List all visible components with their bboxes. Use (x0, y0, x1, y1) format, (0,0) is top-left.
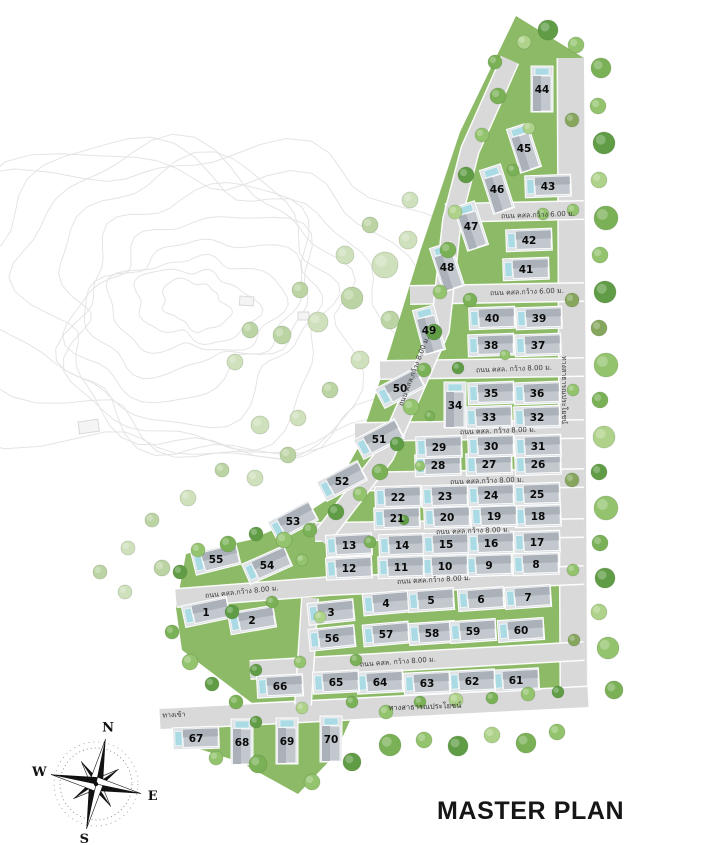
lot-number: 54 (260, 560, 275, 572)
pool (280, 720, 294, 727)
tree-highlight (193, 545, 199, 551)
lot-number: 42 (522, 235, 537, 247)
tree-highlight (597, 499, 608, 510)
lot-number: 16 (484, 538, 499, 550)
tree-highlight (477, 130, 483, 136)
lot-number: 47 (464, 221, 479, 233)
pool (517, 439, 524, 453)
pool (470, 536, 477, 550)
contour-line (106, 254, 288, 353)
lot-number: 39 (532, 313, 547, 325)
lot-number: 37 (531, 340, 546, 352)
pool (516, 386, 523, 400)
lot-number: 26 (531, 459, 546, 471)
tree-highlight (454, 364, 459, 369)
pool (505, 262, 512, 276)
lot-number: 20 (440, 512, 455, 524)
compass-letter: S (80, 832, 89, 845)
lot-number: 56 (325, 633, 340, 645)
pool (495, 674, 503, 688)
plan-title: MASTER PLAN (437, 797, 624, 826)
lot-number: 65 (329, 677, 344, 689)
lot-number: 22 (391, 492, 406, 504)
lot-number: 61 (509, 675, 524, 687)
tree-highlight (596, 135, 606, 145)
pool (468, 410, 475, 424)
tree-highlight (231, 697, 237, 703)
pool (507, 591, 515, 605)
pool (473, 509, 480, 523)
tree-highlight (381, 707, 387, 713)
pool (517, 509, 524, 523)
lot-number: 18 (531, 511, 546, 523)
lot-number: 19 (487, 511, 502, 523)
lot-number: 68 (235, 737, 250, 749)
pool (468, 457, 475, 471)
tree-highlight (249, 472, 256, 479)
tree-highlight (541, 23, 550, 32)
tree-highlight (597, 284, 607, 294)
pool (470, 439, 477, 453)
pool (470, 338, 477, 352)
pool (418, 440, 425, 454)
tree-highlight (374, 466, 381, 473)
lot-number: 70 (324, 734, 339, 746)
tree-highlight (282, 449, 289, 456)
tree-highlight (567, 475, 573, 481)
tree-highlight (156, 562, 163, 569)
pool (310, 633, 318, 648)
lot-number: 43 (541, 181, 556, 193)
existing-building (298, 312, 309, 320)
tree-highlight (392, 439, 398, 445)
lot-number: 30 (484, 441, 499, 453)
tree-highlight (364, 219, 371, 226)
lot-number: 5 (427, 595, 434, 607)
tree-highlight (182, 492, 189, 499)
tree-highlight (344, 290, 354, 300)
tree-highlight (207, 679, 213, 685)
pool (380, 560, 387, 574)
tree-highlight (251, 757, 259, 765)
lot-number: 13 (342, 540, 357, 552)
tree-highlight (311, 315, 320, 324)
compass-letter: N (102, 720, 114, 735)
lot-number: 17 (530, 537, 545, 549)
existing-building (78, 419, 99, 434)
tree-highlight (401, 233, 409, 241)
contour-line (162, 278, 232, 332)
tree-highlight (416, 462, 421, 467)
tree-highlight (353, 353, 361, 361)
pool (324, 718, 338, 725)
contour-line (9, 134, 364, 459)
lot-number: 62 (465, 676, 480, 688)
tree-highlight (501, 351, 506, 356)
lot-number: 52 (335, 476, 350, 488)
lot-number: 41 (519, 264, 534, 276)
pool (425, 537, 432, 551)
existing-building (239, 296, 254, 306)
tree-highlight (567, 115, 573, 121)
lot-number: 8 (532, 559, 539, 571)
pool (460, 593, 468, 607)
tree-highlight (594, 537, 601, 544)
tree-highlight (435, 287, 441, 293)
tree-highlight (330, 506, 337, 513)
lot-number: 21 (390, 513, 405, 525)
tree-highlight (570, 39, 577, 46)
tree-highlight (296, 658, 301, 663)
lot-number: 66 (273, 681, 288, 693)
entrance-label: ทางเข้า (162, 710, 186, 719)
pool (470, 488, 477, 502)
tree-highlight (338, 248, 346, 256)
tree-highlight (519, 736, 528, 745)
tree-highlight (426, 412, 431, 417)
pool (471, 311, 478, 325)
lot-number: 29 (432, 442, 447, 454)
lot-number: 1 (202, 607, 209, 619)
tree-highlight (306, 776, 313, 783)
lot-number: 32 (530, 412, 545, 424)
tree-highlight (600, 640, 610, 650)
tree-highlight (275, 328, 283, 336)
tree-highlight (450, 207, 456, 213)
tree-highlight (244, 324, 251, 331)
pool (259, 680, 267, 694)
tree-highlight (383, 313, 391, 321)
lot-number: 67 (189, 733, 204, 745)
tree-highlight (486, 729, 493, 736)
pool (381, 538, 388, 552)
site-plan-svg: 1234567891011121314151617181920212223242… (0, 0, 725, 845)
lot-number: 53 (286, 516, 301, 528)
tree-highlight (316, 613, 321, 618)
tree-highlight (607, 683, 615, 691)
tree-highlight (184, 656, 191, 663)
lot-number: 49 (422, 325, 437, 337)
house-roof-ridge (523, 554, 558, 563)
tree-highlight (597, 209, 608, 220)
tree-highlight (404, 194, 411, 201)
pool (516, 410, 523, 424)
tree-highlight (120, 587, 126, 593)
lot-number: 6 (477, 594, 484, 606)
tree-highlight (490, 57, 496, 63)
public-way-right-label: ทางสาธารณประโยชน์ (560, 356, 569, 424)
pool (410, 594, 418, 608)
lot-number: 57 (379, 629, 394, 641)
lot-number: 59 (466, 626, 481, 638)
lot-number: 4 (382, 598, 389, 610)
pool (451, 675, 459, 689)
tree-highlight (251, 529, 257, 535)
lot-number: 25 (530, 489, 545, 501)
tree-highlight (227, 607, 233, 613)
tree-highlight (123, 543, 129, 549)
pool (470, 386, 477, 400)
pool (235, 721, 249, 728)
contour-line (59, 152, 341, 451)
tree-highlight (252, 666, 257, 671)
pool (315, 676, 323, 690)
lot-number: 36 (530, 388, 545, 400)
tree-highlight (278, 534, 285, 541)
tree-highlight (95, 567, 101, 573)
lot-number: 58 (425, 628, 440, 640)
pool (426, 510, 433, 524)
pool (518, 311, 525, 325)
tree-highlight (551, 726, 558, 733)
lot-number: 40 (485, 313, 500, 325)
pool (517, 457, 524, 471)
tree-highlight (523, 689, 529, 695)
lot-number: 31 (531, 441, 546, 453)
tree-highlight (594, 249, 601, 256)
tree-highlight (594, 394, 601, 401)
compass-letter: E (148, 789, 158, 804)
pool (516, 535, 523, 549)
lot-number: 27 (482, 459, 497, 471)
compass-center (94, 782, 98, 786)
lot-number: 11 (394, 562, 409, 574)
tree-highlight (298, 556, 303, 561)
tree-highlight (593, 606, 600, 613)
lot-number: 45 (517, 143, 532, 155)
lot-number: 69 (280, 736, 295, 748)
tree-highlight (451, 739, 460, 748)
lot-number: 12 (342, 563, 357, 575)
lot-number: 24 (484, 490, 499, 502)
pool (527, 179, 534, 193)
lot-number: 48 (440, 262, 455, 274)
compass-rose: NESW (31, 720, 158, 845)
tree-highlight (593, 466, 600, 473)
tree-highlight (465, 295, 471, 301)
pool (406, 677, 414, 691)
master-plan-page: 1234567891011121314151617181920212223242… (0, 0, 725, 845)
pool (515, 557, 522, 571)
pool (516, 487, 523, 501)
tree-highlight (147, 515, 153, 521)
pool (424, 489, 431, 503)
lot-number: 44 (535, 84, 550, 96)
lot-number: 7 (524, 592, 531, 604)
pool (468, 558, 475, 572)
tree-highlight (252, 718, 257, 723)
public-road-bottom (160, 697, 588, 719)
tree-highlight (305, 525, 311, 531)
lot-number: 55 (209, 554, 224, 566)
public-road-right (571, 58, 574, 698)
tree-highlight (596, 429, 606, 439)
lot-number: 15 (439, 539, 454, 551)
lot-number: 34 (448, 400, 463, 412)
tree-highlight (597, 356, 608, 367)
tree-highlight (567, 295, 573, 301)
pool (452, 625, 460, 639)
pool (411, 627, 419, 641)
lot-number: 63 (420, 678, 435, 690)
lot-number: 38 (484, 340, 499, 352)
lot-number: 23 (438, 491, 453, 503)
tree-highlight (348, 698, 353, 703)
lot-number: 3 (327, 607, 334, 619)
tree-highlight (598, 571, 607, 580)
pool (377, 490, 384, 504)
tree-highlight (569, 566, 574, 571)
tree-highlight (554, 688, 559, 693)
tree-highlight (592, 100, 599, 107)
lot-number: 60 (514, 625, 529, 637)
lot-number: 9 (485, 560, 492, 572)
lot-number: 28 (431, 460, 446, 472)
tree-highlight (217, 465, 223, 471)
tree-highlight (375, 255, 387, 267)
lot-number: 10 (438, 561, 453, 573)
tree-highlight (593, 322, 600, 329)
tree-highlight (355, 489, 361, 495)
tree-highlight (366, 538, 371, 543)
tree-highlight (222, 538, 229, 545)
pool (364, 597, 372, 612)
lot-number: 35 (484, 388, 499, 400)
tree-highlight (167, 627, 173, 633)
tree-highlight (352, 656, 357, 661)
tree-highlight (460, 169, 467, 176)
tree-highlight (268, 598, 273, 603)
pool (376, 511, 383, 525)
tree-highlight (509, 166, 514, 171)
tree-highlight (570, 636, 575, 641)
tree-highlight (253, 418, 261, 426)
tree-highlight (519, 37, 525, 43)
tree-highlight (345, 755, 353, 763)
tree-highlight (525, 124, 530, 129)
lot-number: 14 (395, 540, 410, 552)
pool (517, 338, 524, 352)
compass-letter: W (31, 765, 47, 780)
lot-number: 46 (490, 184, 505, 196)
lot-number: 64 (373, 677, 388, 689)
tree-highlight (593, 174, 600, 181)
lot-number: 51 (372, 434, 387, 446)
pool (424, 559, 431, 573)
tree-highlight (442, 244, 449, 251)
pool (508, 233, 515, 247)
contour-line (56, 183, 323, 428)
tree-highlight (594, 61, 603, 70)
tree-highlight (229, 356, 236, 363)
contour-line (84, 239, 302, 379)
tree-highlight (211, 753, 217, 759)
lot-number: 2 (248, 615, 255, 627)
tree-highlight (175, 567, 181, 573)
tree-highlight (298, 704, 303, 709)
lot-number: 33 (482, 412, 497, 424)
tree-highlight (569, 386, 574, 391)
tree-highlight (418, 734, 425, 741)
pool (328, 562, 336, 576)
pool (500, 624, 508, 638)
house-roof-ridge (476, 555, 511, 564)
pool (175, 731, 182, 745)
tree-highlight (294, 284, 301, 291)
tree-highlight (492, 90, 499, 97)
pool (448, 384, 462, 391)
tree-highlight (292, 412, 299, 419)
tree-highlight (324, 384, 331, 391)
tree-highlight (382, 737, 392, 747)
pool (328, 539, 336, 553)
pool (535, 68, 549, 75)
pool (364, 628, 372, 643)
tree-highlight (488, 694, 493, 699)
